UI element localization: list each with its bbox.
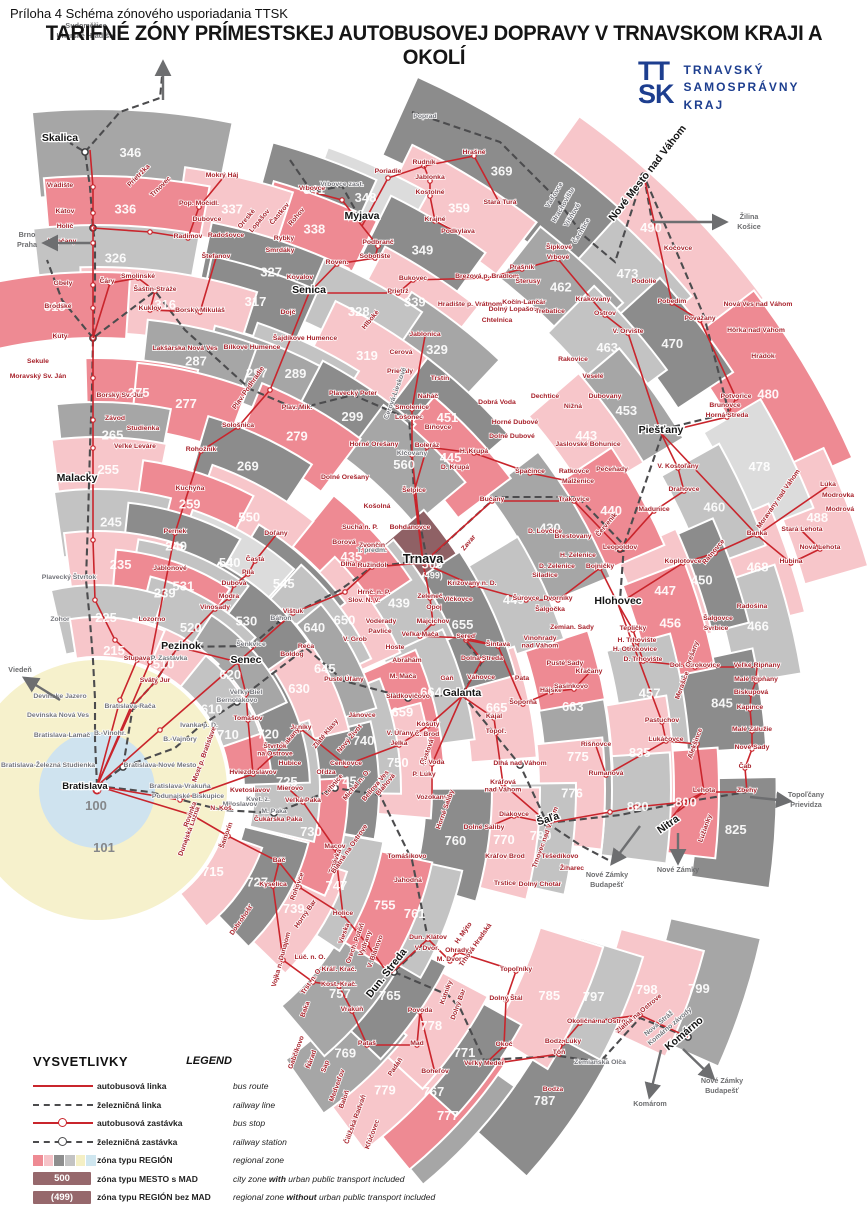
town-label: Koplotovce (664, 558, 701, 565)
town-label: Kost. Krač. (321, 981, 357, 988)
zone-number: 755 (374, 898, 396, 913)
town-label: Radimov (174, 233, 203, 240)
zone-number: 747 (326, 878, 348, 893)
town-label: Klčovany (397, 450, 427, 457)
zone-number: 235 (110, 557, 132, 572)
bus-stop-icon (343, 590, 347, 594)
town-label: Potvorice (721, 393, 752, 400)
zone-number: 269 (237, 458, 259, 473)
zone-number: 265 (102, 427, 124, 442)
town-label: Kapince (737, 704, 764, 711)
railway-station-icon (82, 149, 88, 155)
town-label: Dun. Klátov (409, 934, 447, 941)
town-label: Jelka (390, 740, 407, 747)
zone-number: 798 (636, 982, 658, 997)
region-zone-swatch (44, 1155, 54, 1166)
zone-number: 245 (100, 514, 122, 529)
zone-number: 715 (202, 864, 224, 879)
external-destination-label: Praha (17, 240, 38, 249)
town-label: T. predm. (357, 547, 387, 554)
town-label: Dlhá nad Váhom (493, 760, 546, 767)
zone-number: 299 (342, 409, 364, 424)
town-label: Jánovce (348, 712, 375, 719)
town-label: Siladice (532, 572, 558, 579)
external-destination-label: Nové Zámky (657, 865, 699, 874)
town-label: Vrbové (547, 254, 570, 261)
town-label: Pataš (358, 1040, 376, 1047)
town-label: Moravský Sv. Ján (10, 373, 67, 380)
town-label: Modra (219, 593, 240, 600)
town-label: Zavar (460, 534, 477, 553)
zone-number: 663 (562, 699, 584, 714)
town-label: P. Lúky (412, 771, 436, 778)
bus-stop-icon (340, 198, 344, 202)
town-label: Košúty (416, 721, 439, 728)
town-label: Sobotište (360, 253, 391, 260)
town-label: Studienka (127, 425, 160, 432)
town-label: Čab (739, 761, 752, 770)
town-label: Kajal (486, 713, 502, 720)
zone-number: 466 (747, 618, 769, 633)
town-label: Pusté Úľany (324, 674, 364, 683)
town-label: Modrovka (822, 492, 854, 499)
town-label: D. Zelenice (539, 563, 575, 570)
zone-number: 845 (711, 695, 733, 710)
external-destination-label: Viedeň (8, 665, 31, 674)
town-label: Vinosady (200, 604, 230, 611)
town-label: Reca (298, 643, 314, 650)
town-label: Horná Streda (706, 412, 749, 419)
town-label: Chtelnica (482, 317, 513, 324)
town-label: H. Krupá (460, 448, 489, 455)
town-label: Lukáčovce (648, 736, 683, 743)
town-label: Kuchyňa (176, 485, 205, 492)
zone-number: 450 (691, 573, 713, 588)
ttsk-logo-text: TRNAVSKÝSAMOSPRÁVNYKRAJ (684, 60, 800, 114)
zone-number: 550 (238, 510, 260, 525)
town-label: Nové Sady (735, 744, 770, 751)
town-label: V. Kostoľany (657, 463, 698, 470)
town-label: Bíňovce (425, 424, 452, 431)
town-label: Gáň (440, 675, 453, 682)
town-label: Kostolné (415, 189, 444, 196)
town-label: Trakovice (558, 496, 590, 503)
town-label: Boleráz (415, 442, 440, 449)
bus-route-line-icon (33, 1085, 93, 1087)
town-label: Modrová (826, 506, 855, 513)
town-label: Jablonica (409, 331, 441, 338)
town-label: Topoľníky (500, 966, 533, 973)
zone-number-sub: (499) (422, 571, 443, 581)
town-label: Báhoň (270, 615, 291, 622)
zone-number: 776 (561, 785, 583, 800)
town-label: Stará Turá (483, 199, 516, 206)
region-zone-swatch (33, 1155, 43, 1166)
town-label: Križovany n. D. (447, 580, 496, 587)
zone-number: 730 (300, 824, 322, 839)
zone-number: 531 (173, 579, 195, 594)
town-label: Šterusy (516, 276, 541, 285)
town-label: H. Otrokovice (613, 646, 657, 653)
town-label: Doľany (264, 530, 288, 537)
zone-number: 336 (115, 202, 137, 217)
zone-number: 650 (334, 613, 356, 628)
bus-stop-icon (91, 211, 95, 215)
city-label: Malacky (57, 472, 98, 484)
town-label: Bernolákovo (216, 697, 257, 704)
town-label: Bojničky (586, 563, 615, 570)
town-label: Prašník (510, 264, 535, 271)
zone-number: 765 (379, 988, 401, 1003)
town-label: Brunovce (709, 402, 741, 409)
zone-number: 329 (426, 342, 448, 357)
town-label: Pavlice (368, 628, 392, 635)
zone-number: 456 (659, 615, 681, 630)
town-label: Jablonové (153, 565, 187, 572)
town-label: Brezová p. Bradlom (455, 273, 519, 280)
town-label: Veľká Mača (401, 631, 438, 638)
zone-number: 820 (627, 799, 649, 814)
town-label: Rudník (412, 159, 435, 166)
town-label: Dojč (281, 309, 296, 316)
town-label: Veselé (582, 373, 603, 380)
town-label: Jahodná (394, 877, 422, 884)
town-label: Roven. (326, 259, 349, 266)
external-destination-label: Nové Zámky (586, 870, 628, 879)
town-label: Tomášikovo (387, 853, 426, 860)
town-label: Zbehy (737, 787, 757, 794)
zone-number: 337 (221, 202, 243, 217)
town-label: Mad (410, 1040, 424, 1047)
zone-number: 630 (288, 681, 310, 696)
town-label: Povoda (408, 1007, 433, 1014)
external-destination-label: Budapešť (590, 880, 624, 889)
bus-stop-icon (91, 446, 95, 450)
zone-number: 480 (757, 387, 779, 402)
zone-number: 445 (440, 450, 462, 465)
town-label: Vinohradynad Váhom (522, 635, 559, 650)
town-label: Kyselica (259, 881, 287, 888)
town-label: Č. Brod (415, 729, 440, 738)
zone-number: 289 (285, 366, 307, 381)
town-label: Gbely (54, 280, 73, 287)
town-label: Cenkovce (330, 760, 362, 767)
town-label: Kočín-Lančár (502, 299, 546, 306)
town-label: Lúka (820, 481, 836, 488)
bus-stop-icon (113, 638, 117, 642)
town-label: D. Lovčice (528, 528, 562, 535)
zone-number: 640 (303, 620, 325, 635)
town-label: Ratkovce (559, 468, 589, 475)
town-label: Pusté Sady (547, 660, 584, 667)
zone-number: 778 (420, 1018, 442, 1033)
town-label: Devínska Nová Ves (27, 712, 89, 719)
town-label: Kvetoslavov (230, 787, 270, 794)
town-label: Trebatice (535, 308, 565, 315)
town-label: Kovalov (287, 274, 314, 281)
town-label: Rohožník (186, 446, 217, 453)
bus-stop-icon (93, 598, 97, 602)
zone-number: 317 (245, 294, 267, 309)
town-label: Šípkové (546, 242, 572, 251)
zone-number: 520 (180, 620, 202, 635)
town-label: Šalgovce (703, 613, 733, 622)
town-label: Závod (105, 415, 125, 422)
legend-row-railway-station: železničná zastávkarailway station (33, 1133, 653, 1152)
town-label: Pop. Močidl. (179, 200, 219, 207)
town-label: Stará Lehota (781, 526, 822, 533)
zone-number: 346 (120, 145, 142, 160)
town-label: Cerová (389, 349, 412, 356)
town-label: Kráľov Brod (485, 853, 525, 860)
town-label: Drahovce (669, 486, 700, 493)
town-label: Podkylava (441, 228, 475, 235)
zone-number: 328 (348, 304, 370, 319)
town-label: Slov. N. V. (348, 597, 380, 604)
region-no-mad-box: (499) (33, 1191, 91, 1204)
town-label: Hubina (779, 558, 802, 565)
town-label: Váhovce (467, 674, 495, 681)
bus-stop-icon (91, 283, 95, 287)
zone-map: .zn{font:700 13px "Liberation Sans",sans… (0, 0, 868, 1214)
town-label: V. Dvor. (415, 945, 440, 952)
town-label: Dubovany (589, 393, 622, 400)
town-label: Veľké Leváre (114, 443, 156, 450)
town-label: B.-Vinohr. (94, 730, 126, 737)
town-label: Tešedíkovo (542, 853, 579, 860)
bus-stop-icon (33, 1118, 93, 1128)
city-zone-box: 500 (33, 1172, 91, 1185)
town-label: Svrbice (704, 625, 729, 632)
town-label: Bratislava-Železná Studienka (1, 760, 95, 769)
zone-number: 800 (675, 794, 697, 809)
town-label: Vrbovce zast. (320, 181, 364, 188)
zone-number: 453 (615, 403, 637, 418)
zone-number: 339 (404, 294, 426, 309)
legend-row-bus-route: autobusová linkabus route (33, 1077, 653, 1096)
zone-number: 451 (437, 410, 459, 425)
town-label: Lehota (693, 787, 715, 794)
region-zone-swatch (54, 1155, 64, 1166)
town-label: Pečeňady (596, 466, 628, 473)
town-label: M. Mača (390, 673, 417, 680)
bus-stop-icon (386, 176, 390, 180)
town-label: Stupava (124, 655, 151, 662)
town-label: Majcichov (417, 618, 450, 625)
town-label: Abrahám (392, 657, 421, 664)
town-label: Smolinské (121, 273, 155, 280)
town-label: Kátov (56, 208, 75, 215)
town-label: Topoľ. (486, 728, 507, 735)
zone-number: 439 (388, 595, 410, 610)
town-label: Sasinkovo (554, 683, 588, 690)
town-label: Jablonka (415, 174, 445, 181)
zone-number: 785 (538, 988, 560, 1003)
town-label: Vozokany (416, 794, 447, 801)
town-label: Vlčkovce (443, 596, 473, 603)
town-label: Lúč. n. O. (295, 954, 326, 961)
bus-stop-icon (118, 698, 122, 702)
town-label: Dolný Lopašov (489, 306, 538, 313)
town-label: Rybky (274, 235, 295, 242)
ttsk-logo: TTSK TRNAVSKÝSAMOSPRÁVNYKRAJ (638, 60, 800, 114)
zone-number: 620 (219, 667, 241, 682)
town-label: Vištuk (283, 608, 303, 615)
zone-number: 319 (356, 348, 378, 363)
town-label: Zeleneč (417, 593, 443, 600)
zone-number: 760 (445, 833, 467, 848)
zone-number: 249 (165, 539, 187, 554)
zone-number: 835 (629, 745, 651, 760)
zone-number: 468 (747, 560, 769, 575)
town-label: Trstice (494, 880, 516, 887)
town-label: D. Krupá (441, 464, 470, 471)
town-label: Kráľovánad Váhom (485, 779, 522, 794)
town-label: Dolné Dubové (489, 433, 535, 440)
town-label: Tomášov (233, 715, 263, 722)
zone-number: 277 (175, 396, 197, 411)
zone-number: 348 (355, 190, 377, 205)
town-label: Horné Dubové (492, 419, 539, 426)
town-label: Nižná (564, 403, 582, 410)
town-label: Krajné (424, 216, 445, 223)
zone-number: 775 (567, 749, 589, 764)
town-label: Macov (324, 843, 345, 850)
town-label: Jaslovské Bohunice (555, 441, 621, 448)
zone-number: 369 (491, 164, 513, 179)
town-label: Bratislava-Lamač (34, 732, 91, 739)
town-label: Veľké Ripňany (734, 662, 781, 669)
city-label: Skalica (42, 132, 78, 144)
town-label: Radošovce (208, 232, 244, 239)
bus-stop-icon (91, 418, 95, 422)
legend-row-railway-line: železničná linkarailway line (33, 1096, 653, 1115)
town-label: Malé Ripňany (734, 676, 778, 683)
city-label: Pezinok (161, 640, 201, 652)
town-label: Hubice (279, 760, 302, 767)
zone-number: 460 (704, 499, 726, 514)
town-label: Rišňovce (581, 741, 611, 748)
zone-number: 710 (217, 727, 239, 742)
city-label: Myjava (344, 210, 379, 222)
town-label: Žiharec (560, 863, 584, 872)
town-label: Pata (515, 675, 530, 682)
town-label: Bohdanovce (390, 524, 431, 531)
town-label: Dubová (222, 580, 247, 587)
town-label: Diakovce (499, 811, 529, 818)
bus-stop-icon (91, 538, 95, 542)
town-label: Borský Sv. Jur (96, 392, 143, 399)
external-destination-label: Budapešť (705, 1086, 739, 1095)
town-label: Lozorno (139, 616, 166, 623)
town-label: Píla (242, 569, 254, 576)
town-label: Čáry (99, 276, 114, 285)
town-label: Bílkove Humence (224, 344, 281, 351)
town-label: Šalgočka (535, 604, 565, 613)
town-label: Šenkvice (236, 639, 266, 648)
external-destination-label: Žilina (740, 212, 760, 221)
town-label: Borová (332, 539, 356, 546)
town-label: Hrnč. n. P. (358, 589, 391, 596)
zone-number: 338 (303, 222, 325, 237)
zone-number: 463 (596, 340, 618, 355)
zone-number: 259 (179, 497, 201, 512)
city-label: Trnava (403, 552, 444, 566)
town-label: Prietrž (387, 288, 409, 295)
town-label: Dobrá Voda (478, 399, 516, 406)
legend-row-region-no-mad: (499) zóna typu REGIÓN bez MAD regional … (33, 1188, 653, 1207)
region-zone-swatches (33, 1155, 97, 1166)
town-label: Okoč (496, 1041, 513, 1048)
town-label: Kúty (52, 333, 67, 340)
bus-stop-icon (91, 306, 95, 310)
railway-line-icon (33, 1104, 93, 1106)
town-label: Šoporňa (509, 697, 537, 706)
external-destination-label: Košice (737, 222, 761, 231)
legend-row-bus-stop: autobusová zastávkabus stop (33, 1114, 653, 1133)
town-label: Kľačany (576, 668, 603, 675)
town-label: Ostrov (594, 310, 616, 317)
bus-stop-icon (608, 810, 612, 814)
town-label: Trstín (431, 375, 450, 382)
town-label: Zohor (50, 616, 70, 623)
zone-number: 750 (387, 755, 409, 770)
ttsk-logo-icon: TTSK (638, 60, 674, 106)
town-label: Dol. Otrokovice (670, 662, 720, 669)
town-label: V. Grob (343, 636, 367, 643)
external-destination-label: Brno (19, 230, 36, 239)
town-label: Radošina (737, 603, 768, 610)
city-label: Hlohovec (594, 595, 641, 607)
bus-stop-icon (91, 185, 95, 189)
town-label: Veľký Biel (230, 689, 263, 696)
external-destination-label: Nové Zámky (701, 1076, 743, 1085)
town-label: Zemian. Sady (550, 624, 594, 631)
town-label: Špačince (515, 466, 545, 475)
town-label: Bratislava-Vrakuňa (149, 783, 210, 790)
zone-number: 447 (654, 583, 676, 598)
town-label: Sološnica (222, 422, 254, 429)
page-caption: Príloha 4 Schéma zónového usporiadania T… (10, 6, 288, 21)
town-label: Podunajské Biskupice (152, 793, 224, 800)
page: .zn{font:700 13px "Liberation Sans",sans… (0, 0, 868, 1214)
town-label: Hrašné (462, 149, 485, 156)
bus-stop-icon (148, 230, 152, 234)
town-label: Opoj (426, 604, 442, 611)
town-label: Kočovce (664, 245, 693, 252)
legend-title-en: LEGEND (186, 1054, 232, 1069)
town-label: Veľká Paka (285, 797, 321, 804)
zone-number: 825 (725, 822, 747, 837)
town-label: Kuklov (139, 305, 162, 312)
zone-number: 720 (257, 726, 279, 741)
town-label: Dolná Streda (461, 655, 503, 662)
town-label: Brodské (44, 303, 71, 310)
town-label: Bratislava-Rača (104, 703, 155, 710)
zone-number: 470 (661, 336, 683, 351)
legend-row-city-zone: 500 zóna typu MESTO s MAD city zone with… (33, 1170, 653, 1189)
town-label: Naháč (418, 393, 439, 400)
bus-stop-icon (91, 376, 95, 380)
zone-number: 530 (236, 614, 258, 629)
town-label: Krakovany (576, 296, 611, 303)
town-label: Voderady (366, 618, 397, 625)
town-label: Dechtice (531, 393, 560, 400)
zone-number: 326 (105, 250, 127, 265)
town-label: Dolné Orešany (321, 474, 369, 481)
zone-number: 287 (185, 353, 207, 368)
town-label: Smrdáky (266, 247, 295, 254)
